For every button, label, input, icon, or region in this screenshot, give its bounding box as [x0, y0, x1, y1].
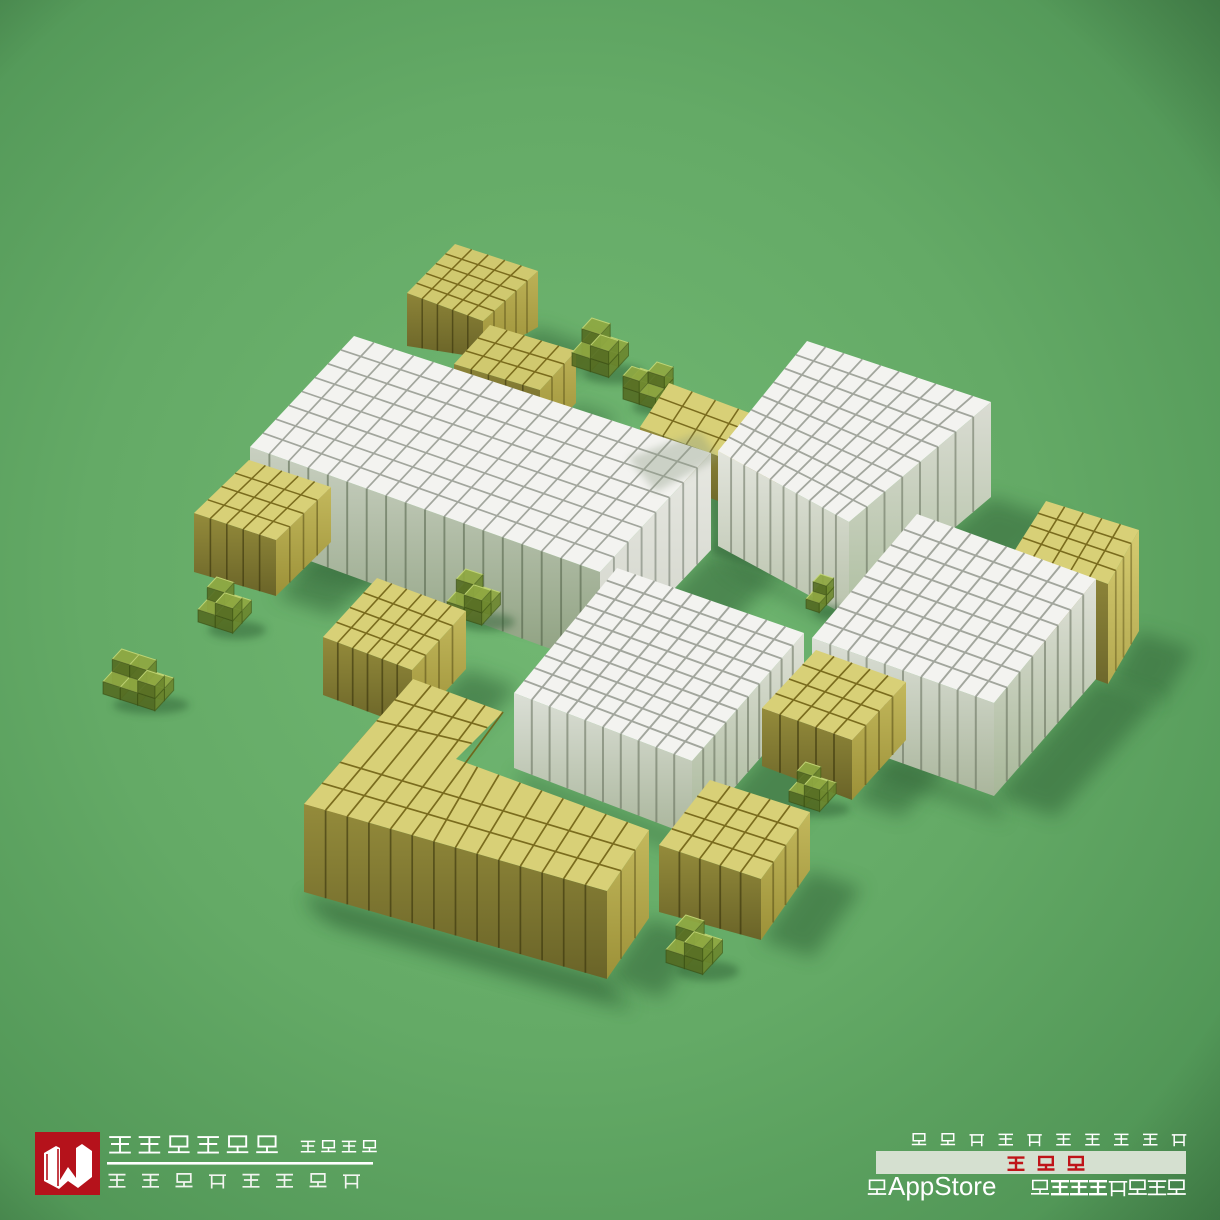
svg-text:AppStore: AppStore: [888, 1171, 996, 1201]
